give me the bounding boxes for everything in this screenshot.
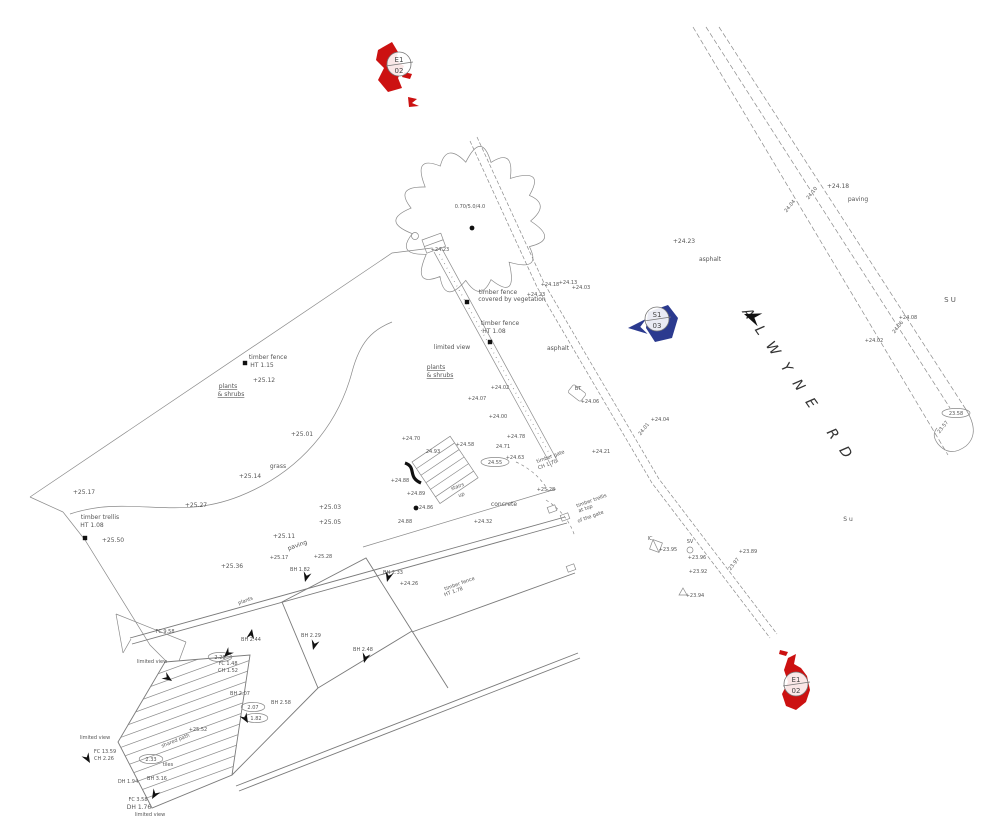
fence-post (83, 536, 87, 540)
annotation-label: +23.92 (689, 569, 708, 575)
annotation-label: timber fence (249, 354, 288, 361)
annotation-label: 24.93 (426, 449, 440, 455)
annotation-label: FC 3.58 (128, 797, 147, 803)
annotation-label: +24.70 (402, 436, 421, 442)
tree-spec-label: 0.70/5.0/4.0 (455, 204, 485, 210)
annotation-label: timber trellis (81, 514, 119, 521)
utility-cover-icon (412, 233, 419, 240)
stair-tread-line (100, 693, 270, 755)
annotation-label: limited view (80, 735, 110, 741)
annotation-label: +24.18 (541, 282, 560, 288)
annotation-label: limited view (135, 812, 165, 818)
small-room (116, 614, 186, 661)
annotation-label: +25.05 (319, 519, 341, 526)
annotation-label: timber fence (479, 289, 518, 296)
pointer-arrow-icon (360, 652, 370, 664)
annotation-label: +24.23 (431, 247, 450, 253)
stair-tread-line (100, 743, 270, 805)
tree-canopy (396, 146, 545, 291)
annotation-label: +23.94 (686, 593, 705, 599)
annotation-label: +24.88 (391, 478, 410, 484)
annotation-label: +24.23 (527, 292, 546, 298)
annotation-label: 24.04 (783, 199, 797, 214)
road-right-kerbs (693, 27, 973, 455)
pointer-arrow-icon (149, 788, 161, 801)
annotation-label: +23.89 (739, 549, 758, 555)
annotation-label: +24.21 (592, 449, 611, 455)
station-id-top: S1 (653, 311, 662, 319)
annotation-label: HT 1.15 (250, 362, 274, 369)
annotation-label: BH 3.16 (147, 776, 167, 782)
gate-post (547, 505, 557, 513)
annotation-label: FC 13.59 (94, 749, 116, 755)
annotation-label: shared path (161, 733, 191, 750)
annotation-label: +25.17 (73, 489, 95, 496)
annotation-label: CH 1.52 (218, 668, 238, 674)
annotation-label: grass (270, 463, 286, 470)
annotation-label: up (458, 491, 466, 499)
annotation-label: paving (287, 539, 309, 553)
annotation-label: & shrubs (218, 391, 245, 398)
annotation-label: plants (427, 364, 445, 371)
annotation-label: 24.06 (891, 320, 905, 335)
annotation-label: limited view (137, 659, 167, 665)
pointer-arrow-icon (309, 639, 319, 651)
annotation-label: asphalt (699, 256, 722, 263)
annotation-label: DH 1.76 (127, 804, 152, 811)
annotation-label: +24.32 (474, 519, 493, 525)
annotation-label: 24.01 (637, 422, 651, 437)
annotation-label: +25.28 (314, 554, 333, 560)
annotation-label: +24.04 (651, 417, 670, 423)
annotation-label: S u (843, 516, 853, 523)
annotation-label: asphalt (547, 345, 570, 352)
vegetation-edge-line (70, 322, 392, 514)
annotation-label: limited view (434, 344, 471, 351)
annotation-label: BH 1.82 (290, 567, 310, 573)
annotation-label: S U (944, 296, 956, 304)
annotation-label: +24.63 (506, 455, 525, 461)
annotation-label: SV (687, 539, 694, 545)
annotation-label: +23.96 (688, 555, 707, 561)
annotation-label: +25.50 (102, 537, 124, 544)
annotation-label: +25.17 (270, 555, 289, 561)
utility-symbols (568, 384, 693, 595)
annotation-label: +25.27 (185, 502, 207, 509)
stair-tread-line (100, 713, 270, 775)
annotation-label: +25.52 (189, 727, 208, 733)
circled-value-label: 2.07 (247, 705, 258, 711)
survey-drawing-canvas: ALWYNE RD 0.70/5.0/4.0 +25.17+25.27timbe… (0, 0, 1000, 820)
annotation-label: FC 9.58 (155, 629, 174, 635)
spot-point (470, 226, 475, 231)
road-name-label: ALWYNE RD (738, 304, 862, 471)
timber-fence-line (412, 573, 575, 632)
station-id-top: E1 (395, 56, 404, 64)
tree (396, 146, 545, 291)
annotation-label: 23.57 (936, 420, 950, 435)
circled-value-label: 1.82 (250, 716, 261, 722)
annotation-label: 24.71 (496, 444, 510, 450)
station-id-top: E1 (792, 676, 801, 684)
annotation-label: plants (237, 595, 254, 606)
stair-tread-line (100, 653, 270, 715)
annotation-label: plants (219, 383, 237, 390)
annotation-label: concrete (491, 501, 517, 508)
annotation-label: 24.10 (805, 186, 819, 201)
annotation-label: +24.89 (407, 491, 426, 497)
annotation-label: CH 2.26 (94, 756, 114, 762)
annotation-label: timber fence (481, 320, 520, 327)
annotation-label: +25.36 (221, 563, 243, 570)
fence-post (488, 340, 492, 344)
annotation-label: +25.01 (291, 431, 313, 438)
spot-point (414, 506, 419, 511)
pointer-arrow-icon (162, 672, 175, 684)
annotation-label: +24.26 (400, 581, 419, 587)
annotation-label: +24.06 (581, 399, 600, 405)
gates (516, 462, 576, 572)
annotation-label: paving (848, 196, 869, 203)
annotation-label: +25.28 (537, 487, 556, 493)
annotation-label: +24.18 (827, 183, 849, 190)
plot-boundary-lines (30, 248, 432, 661)
annotation-label: BH 2.07 (230, 691, 250, 697)
annotation-label: +24.78 (507, 434, 526, 440)
annotation-label: +24.03 (572, 285, 591, 291)
annotation-label: +24.23 (673, 238, 695, 245)
annotation-label: +24.00 (489, 414, 508, 420)
circled-value-label: 23.58 (949, 411, 963, 417)
annotation-label: +25.11 (273, 533, 295, 540)
station-id-bottom: 02 (792, 687, 801, 695)
annotation-label: +24.08 (899, 315, 918, 321)
stair-tread-line (100, 723, 270, 785)
annotation-label: & shrubs (427, 372, 454, 379)
annotation-label: +23.95 (659, 547, 678, 553)
fence-post (465, 300, 469, 304)
annotation-label: +25.14 (239, 473, 261, 480)
stair-tread-line (100, 733, 270, 795)
annotation-label: +25.03 (319, 504, 341, 511)
annotation-label: BH 2.29 (301, 633, 321, 639)
annotation-label: 23.97 (727, 557, 741, 572)
annotation-label: +25.12 (253, 377, 275, 384)
annotation-label: +24.07 (468, 396, 487, 402)
footpath-fence (434, 247, 558, 467)
annotation-label: HT 1.08 (80, 522, 104, 529)
annotation-label: DH 1.94 (118, 779, 138, 785)
circled-value-label: 2.33 (145, 757, 156, 763)
annotation-label: +24.58 (456, 442, 475, 448)
station-id-bottom: 02 (395, 67, 404, 75)
circled-value-label: 2.28 (214, 655, 225, 661)
circled-value-label: 24.55 (488, 460, 502, 466)
station-id-bottom: 03 (653, 322, 662, 330)
annotation-label: BT (575, 386, 582, 392)
survey-drawing-page: { "colors":{"station_red":"#cc1111","sta… (0, 0, 1000, 820)
annotation-label: BH 2.58 (271, 700, 291, 706)
annotation-label: BH 2.44 (241, 637, 261, 643)
annotation-layer: +25.17+25.27timber trellisHT 1.08+25.50+… (73, 183, 956, 818)
pointer-arrow-icon (82, 752, 94, 765)
annotation-label: BH 2.48 (353, 647, 373, 653)
annotation-label: IC (648, 536, 653, 542)
fence-post (243, 361, 247, 365)
sv-valve-icon (687, 547, 693, 553)
annotation-label: tiles (163, 762, 174, 768)
annotation-label: 24.88 (398, 519, 412, 525)
gate-post (566, 564, 576, 572)
annotation-label: HT 1.08 (482, 328, 506, 335)
stair-tread-line (100, 623, 270, 685)
annotation-label: +24.02 (865, 338, 884, 344)
pointer-arrow-icon (301, 571, 311, 583)
annotation-label: +24.02 (491, 385, 510, 391)
